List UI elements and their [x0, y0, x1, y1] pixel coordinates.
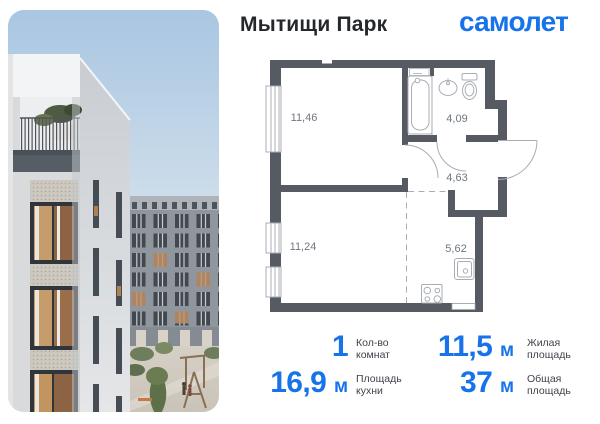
living-area-label: Жилаяплощадь [527, 337, 571, 362]
foreground-building-side [80, 58, 130, 412]
kitchen-sink-icon [455, 259, 475, 280]
rooms-count-label: Кол-вокомнат [356, 337, 390, 362]
building-photo-render [8, 10, 219, 412]
plan-niches [322, 60, 475, 310]
room-area-label: 11,24 [290, 241, 317, 253]
courtyard [125, 342, 219, 412]
room-area-label: 4,63 [446, 172, 467, 184]
stat-total-area: 37 м Общаяплощадь [420, 368, 571, 402]
rooms-count-value: 1 [240, 332, 348, 366]
sink-icon [439, 78, 457, 96]
room-area-label: 5,62 [445, 243, 466, 255]
building-photo [8, 10, 219, 412]
door-arc-bathroom [437, 142, 466, 171]
stat-living-area: 11,5 м Жилаяплощадь [420, 332, 571, 366]
door-arc-room [405, 145, 438, 178]
stove-icon [422, 285, 443, 304]
facade-windows [30, 202, 78, 412]
bathtub-icon [408, 74, 432, 135]
floor-plan: 11,46 4,09 4,63 11,24 5,62 [258, 54, 554, 328]
apartment-listing-card[interactable]: Мытищи Парк самолет [0, 0, 600, 424]
entrance-door-arc [498, 141, 537, 180]
room-area-label: 11,46 [291, 112, 318, 124]
samolet-logo: самолет [459, 6, 568, 38]
kitchen-area-value: 16,9 м [240, 368, 348, 402]
stat-kitchen-area: 16,9 м Площадькухни [240, 368, 402, 402]
background-building [128, 196, 219, 346]
toilet-icon [462, 74, 477, 100]
total-area-label: Общаяплощадь [527, 373, 571, 398]
total-area-value: 37 м [420, 368, 514, 402]
living-area-value: 11,5 м [420, 332, 514, 366]
foreground-building-front [8, 54, 82, 412]
stat-rooms-count: 1 Кол-вокомнат [240, 332, 390, 366]
project-title: Мытищи Парк [240, 13, 387, 37]
room-area-label: 4,09 [446, 113, 467, 125]
kitchen-area-label: Площадькухни [356, 373, 402, 398]
